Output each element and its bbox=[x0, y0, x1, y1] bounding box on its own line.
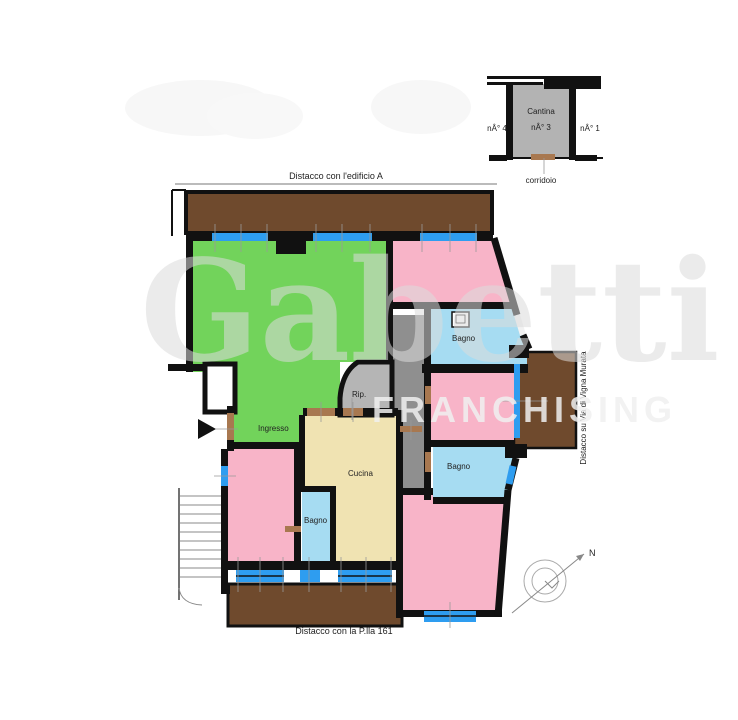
label-bath-lower-left: Bagno bbox=[304, 516, 328, 525]
watermark-brand: Gabetti bbox=[140, 230, 720, 394]
label-bath-middle-right: Bagno bbox=[447, 462, 471, 471]
floorplan-svg: Cantina nÂ° 3 nÂ° 4 nÂ° 1 corridoio Dist… bbox=[0, 0, 738, 720]
compass-north-label: N bbox=[589, 548, 596, 558]
floorplan-canvas: Cantina nÂ° 3 nÂ° 4 nÂ° 1 corridoio Dist… bbox=[0, 0, 738, 720]
window-right-diagonal bbox=[509, 466, 513, 484]
balcony-top bbox=[186, 192, 492, 233]
room-bath-lower-left bbox=[302, 490, 332, 565]
door-bath-mr bbox=[425, 452, 431, 472]
stairs bbox=[179, 488, 221, 605]
window-bottom-2 bbox=[300, 570, 320, 582]
entrance-door bbox=[227, 413, 234, 440]
cellar-door-sill bbox=[531, 154, 555, 160]
cellar-room bbox=[513, 84, 569, 158]
label-storage: Rip. bbox=[352, 390, 366, 399]
room-bedroom-bottom-left bbox=[225, 449, 298, 567]
label-kitchen: Cucina bbox=[348, 469, 373, 478]
cellar-unit-center-label: nÂ° 3 bbox=[531, 123, 551, 132]
watermark-subtitle: FRANCHISING bbox=[372, 389, 677, 430]
cellar-corridor-label: corridoio bbox=[526, 176, 557, 185]
label-bath-upper-right: Bagno bbox=[452, 334, 476, 343]
cellar-unit-right-label: nÂ° 1 bbox=[580, 124, 600, 133]
cellar-unit-left-label: nÂ° 4 bbox=[487, 124, 507, 133]
compass: N bbox=[512, 548, 596, 613]
cellar-inset: Cantina nÂ° 3 nÂ° 4 nÂ° 1 corridoio bbox=[487, 76, 603, 185]
boundary-label-top: Distacco con l'edificio A bbox=[289, 171, 383, 181]
balcony-bottom bbox=[228, 584, 402, 626]
entrance-arrow-icon bbox=[198, 419, 216, 439]
cellar-room-label: Cantina bbox=[527, 107, 555, 116]
room-bath-middle-right bbox=[433, 447, 514, 503]
door-bath-ll bbox=[285, 526, 301, 532]
label-entrance: Ingresso bbox=[258, 424, 289, 433]
faded-logo-blobs bbox=[125, 80, 471, 139]
room-bedroom-bottom-right bbox=[403, 492, 509, 616]
